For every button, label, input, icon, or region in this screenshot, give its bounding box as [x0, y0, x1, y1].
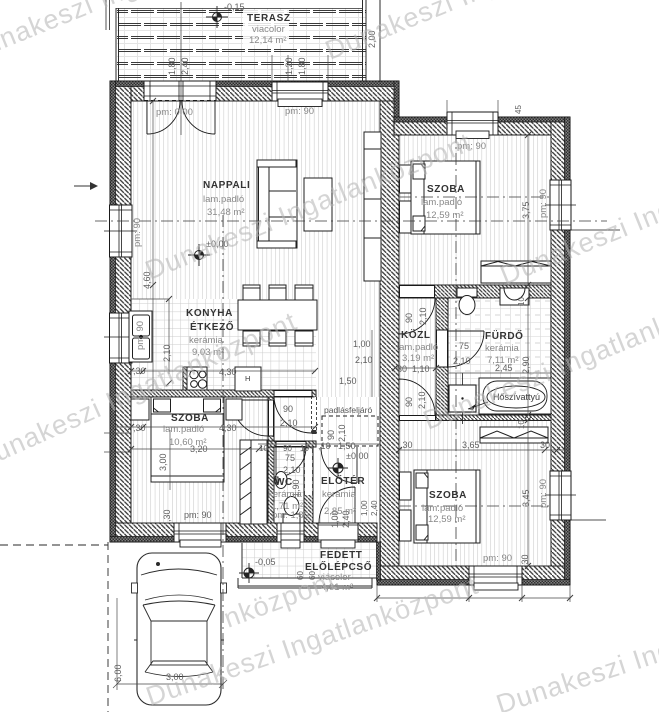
svg-text:7,11 m²: 7,11 m²	[487, 355, 519, 366]
svg-text:KONYHA: KONYHA	[186, 308, 233, 319]
svg-text:2,40: 2,40	[370, 500, 379, 516]
svg-text:1,00: 1,00	[360, 500, 369, 516]
svg-text:3,45: 3,45	[521, 489, 531, 507]
svg-text:12,14 m²: 12,14 m²	[249, 35, 287, 46]
svg-text:,10: ,10	[318, 441, 331, 451]
svg-text:10,60 m²: 10,60 m²	[169, 437, 207, 448]
svg-text:10: 10	[300, 444, 309, 453]
svg-text:1,50: 1,50	[339, 376, 357, 386]
svg-text:kerámia: kerámia	[322, 489, 357, 500]
svg-text:1,71 m²: 1,71 m²	[271, 501, 303, 512]
svg-text:3,19 m²: 3,19 m²	[402, 353, 434, 364]
svg-text:10: 10	[517, 297, 526, 306]
svg-text:1,80: 1,80	[297, 57, 307, 75]
svg-text:1,10: 1,10	[412, 364, 430, 374]
svg-text:30: 30	[397, 364, 407, 374]
svg-text:kerámia: kerámia	[268, 489, 303, 500]
svg-text:3,65: 3,65	[462, 440, 480, 450]
svg-text:SZOBA: SZOBA	[427, 184, 465, 195]
svg-text:NAPPALI: NAPPALI	[203, 180, 250, 191]
svg-text:SZOBA: SZOBA	[429, 490, 467, 501]
svg-text:2,10: 2,10	[337, 424, 347, 442]
svg-text:2,40: 2,40	[180, 57, 190, 75]
svg-text:pm: 90: pm: 90	[132, 218, 143, 247]
svg-text:kerámia: kerámia	[485, 343, 520, 354]
svg-text:padlásfeljáró: padlásfeljáró	[324, 405, 372, 415]
svg-text:75: 75	[285, 453, 295, 463]
svg-text:FÜRDŐ: FÜRDŐ	[485, 329, 524, 342]
svg-text:pm: 90: pm: 90	[538, 479, 549, 508]
svg-text:4,30: 4,30	[219, 423, 237, 433]
svg-text:pm: 90: pm: 90	[285, 106, 314, 117]
svg-text:H: H	[245, 374, 250, 383]
svg-text:10: 10	[259, 444, 268, 453]
svg-text:ÉTKEZŐ: ÉTKEZŐ	[190, 320, 234, 333]
svg-text:lam.padló: lam.padló	[397, 342, 438, 353]
svg-text:±0,00: ±0,00	[346, 451, 368, 461]
svg-text:30: 30	[540, 440, 550, 450]
svg-text:,30: ,30	[133, 423, 146, 433]
svg-text:2,10: 2,10	[280, 418, 298, 428]
svg-text:pm: 90: pm: 90	[135, 321, 146, 350]
svg-text:TERASZ: TERASZ	[247, 13, 291, 24]
svg-text:90: 90	[283, 444, 292, 453]
svg-text:3,75: 3,75	[521, 201, 531, 219]
svg-text:1,20: 1,20	[284, 57, 294, 75]
svg-text:lam.padló: lam.padló	[163, 424, 204, 435]
svg-text:90: 90	[404, 397, 414, 407]
svg-text:,30: ,30	[162, 509, 172, 522]
svg-text:12,59 m²: 12,59 m²	[428, 514, 466, 525]
svg-text:WC: WC	[275, 477, 293, 488]
svg-text:-0,05: -0,05	[255, 557, 276, 567]
svg-text:2,85 m²: 2,85 m²	[324, 506, 356, 517]
svg-text:lam.padló: lam.padló	[422, 503, 463, 514]
svg-text:2,10: 2,10	[283, 465, 301, 475]
svg-text:lam.padló: lam.padló	[203, 194, 244, 205]
svg-text:pm: 90: pm: 90	[538, 189, 549, 218]
svg-text:pm: 90: pm: 90	[483, 553, 512, 564]
svg-text:3,00: 3,00	[158, 453, 168, 471]
svg-text:75: 75	[459, 341, 469, 351]
svg-text:31,48 m²: 31,48 m²	[207, 207, 245, 218]
svg-text:1,80: 1,80	[167, 57, 177, 75]
svg-text:KÖZL: KÖZL	[401, 328, 431, 341]
svg-text:90: 90	[283, 404, 293, 414]
svg-text:45: 45	[514, 105, 523, 114]
svg-text:FEDETT: FEDETT	[320, 550, 363, 561]
svg-text:6,00: 6,00	[113, 664, 123, 682]
svg-text:90: 90	[404, 313, 414, 323]
svg-text:1,00: 1,00	[353, 339, 371, 349]
svg-text:2,10: 2,10	[418, 307, 428, 325]
svg-text:SZOBA: SZOBA	[171, 413, 209, 424]
svg-text:viacolor: viacolor	[252, 24, 285, 35]
svg-text:10: 10	[517, 420, 526, 429]
svg-text:,30: ,30	[400, 440, 413, 450]
svg-text:pm: 90: pm: 90	[184, 510, 212, 520]
svg-text:2,10: 2,10	[453, 356, 471, 366]
svg-text:-0,15: -0,15	[224, 2, 245, 12]
svg-text:90: 90	[326, 430, 336, 440]
svg-text:ELŐTÉR: ELŐTÉR	[321, 474, 365, 487]
svg-text:2,10: 2,10	[355, 355, 373, 365]
svg-text:lam.padló: lam.padló	[421, 197, 462, 208]
svg-text:12,59 m²: 12,59 m²	[426, 210, 464, 221]
svg-text:pm: 0,00: pm: 0,00	[156, 107, 193, 118]
